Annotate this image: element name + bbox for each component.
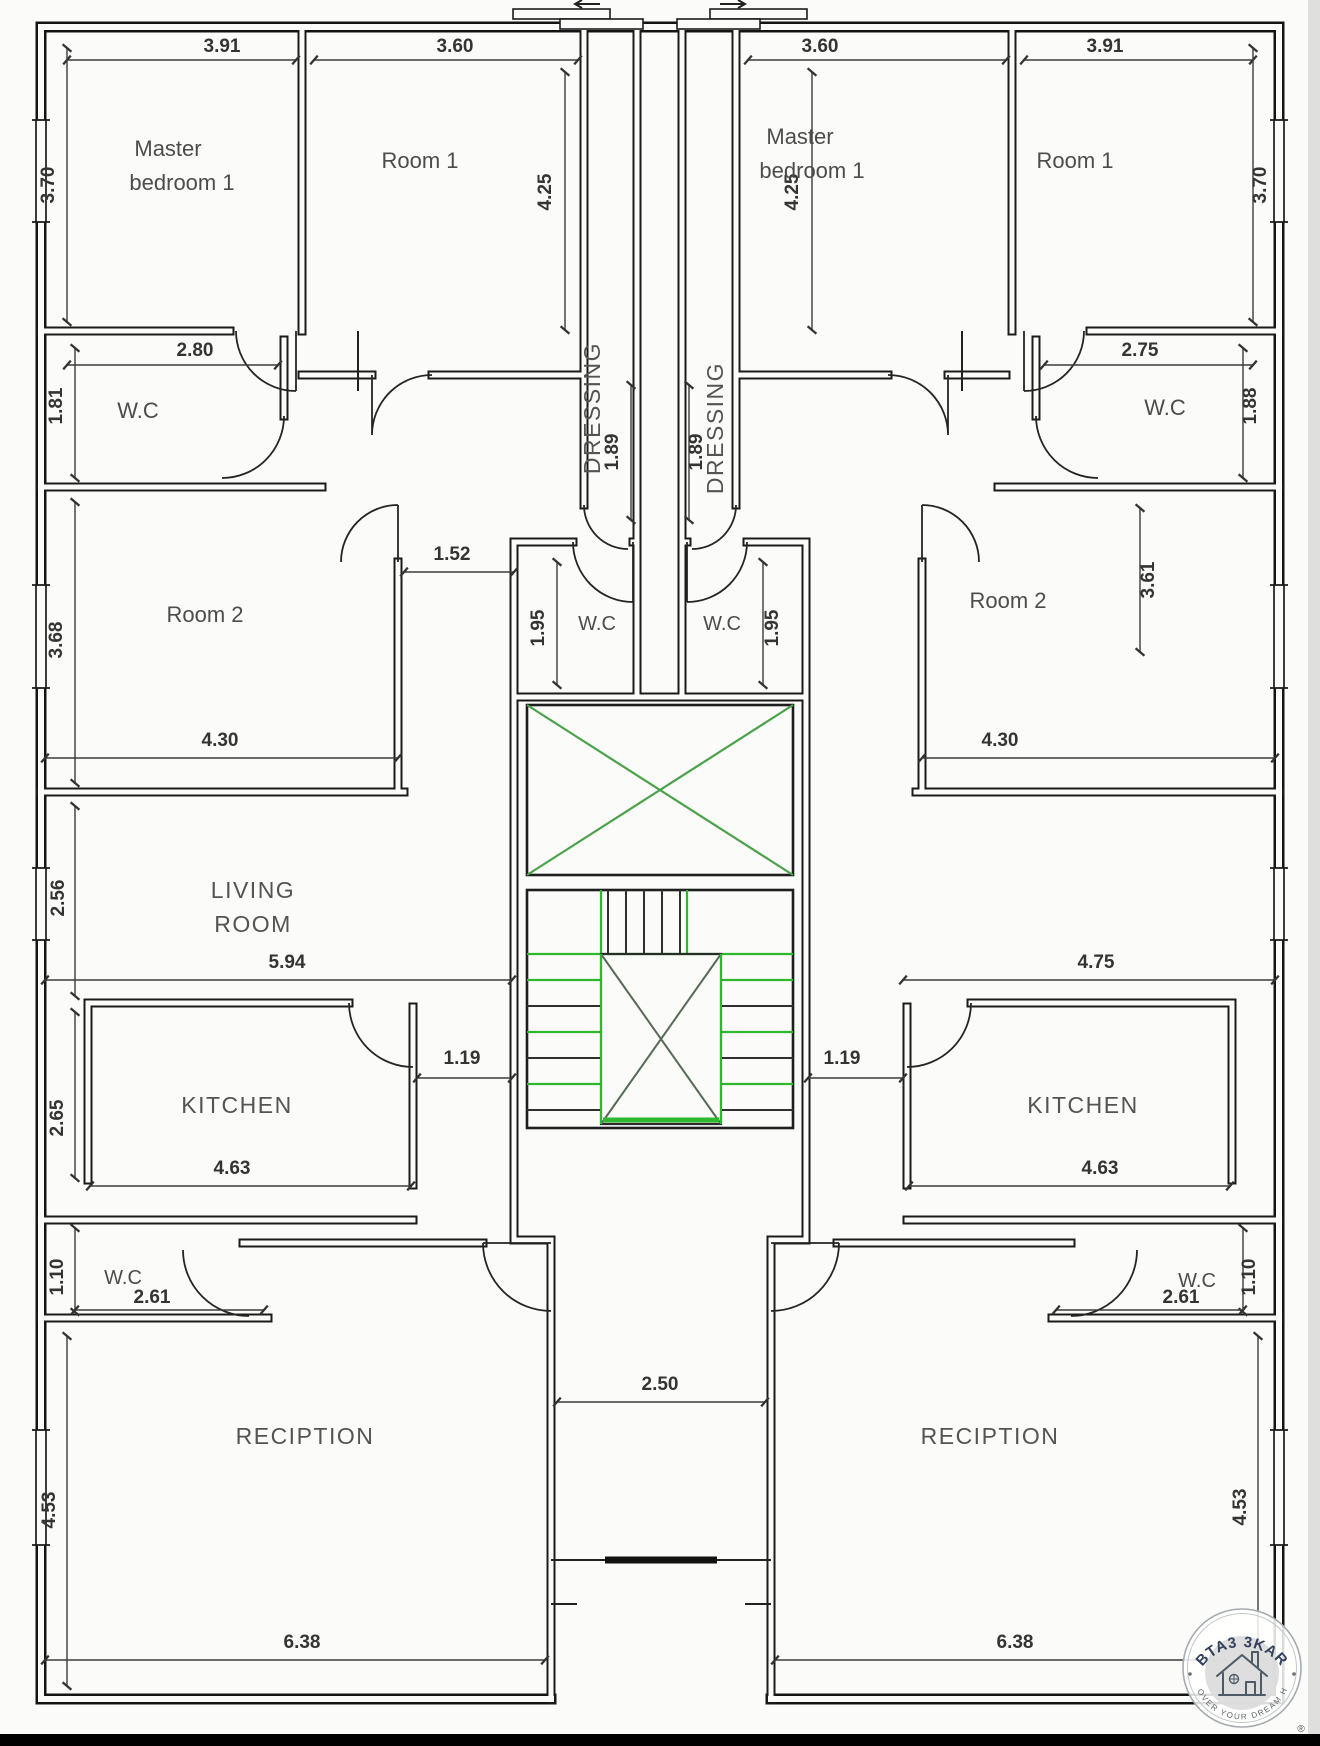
label-dressing-right: DRESSING (702, 362, 728, 494)
floor-plan-drawing: 3.91 3.60 3.60 3.91 3.70 3.70 4.25 4.25 … (0, 0, 1320, 1746)
dim-wc-bottom-h-right: 1.10 (1239, 1259, 1260, 1296)
dim-wc-bottom-h-left: 1.10 (47, 1259, 68, 1296)
label-living-line2: ROOM (214, 911, 292, 937)
window-right-living (1270, 868, 1288, 940)
label-room2-right: Room 2 (969, 588, 1046, 613)
window-right-room1 (1270, 120, 1288, 222)
label-reception-right: RECIPTION (921, 1423, 1060, 1449)
dim-room2-w-right: 4.30 (982, 730, 1019, 751)
paper-background (0, 0, 1320, 1746)
label-wc-core-left: W.C (578, 613, 616, 635)
dim-room1-h-right: 3.70 (1250, 167, 1271, 204)
dim-wc-bottom-w-left: 2.61 (134, 1287, 171, 1308)
dim-reception-h-right: 4.53 (1230, 1489, 1251, 1526)
dim-reception-h-left: 4.53 (39, 1492, 60, 1529)
window-right-room2 (1270, 585, 1288, 688)
label-room2-left: Room 2 (166, 602, 243, 627)
dim-living-w-left: 5.94 (269, 952, 306, 973)
dim-master-w-left: 3.91 (204, 36, 241, 57)
dim-master-w-right: 3.60 (802, 36, 839, 57)
dim-wc-top-h-left: 1.81 (46, 387, 67, 424)
dim-wc-top-w-right: 2.75 (1122, 340, 1159, 361)
dim-wc-top-h-right: 1.88 (1240, 388, 1261, 425)
dim-reception-w-right: 6.38 (997, 1632, 1034, 1653)
dim-kitchen-w-right: 4.63 (1082, 1158, 1119, 1179)
dim-wc-core-h-right: 1.95 (762, 609, 783, 646)
label-master-left-line2: bedroom 1 (129, 170, 234, 195)
dim-living-w-right: 4.75 (1078, 952, 1115, 973)
registered-mark: ® (1297, 1724, 1305, 1735)
dim-master-h-left: 3.70 (38, 167, 59, 204)
scan-bottom-bar (0, 1734, 1320, 1746)
label-living-line1: LIVING (211, 877, 295, 903)
label-room1-right: Room 1 (1036, 148, 1113, 173)
label-dressing-left: DRESSING (579, 342, 605, 474)
label-wc-bottom-right: W.C (1178, 1270, 1216, 1292)
dim-room2-h-right: 3.61 (1138, 561, 1159, 598)
scan-edge-strip (1308, 0, 1320, 1746)
dim-living-h-left: 2.56 (48, 880, 69, 917)
dim-passage-right: 1.19 (824, 1048, 861, 1069)
label-wc-top-left: W.C (117, 398, 159, 423)
scanned-floor-plan-page: 3.91 3.60 3.60 3.91 3.70 3.70 4.25 4.25 … (0, 0, 1320, 1746)
label-kitchen-right: KITCHEN (1027, 1092, 1138, 1118)
dim-room1-h-left: 4.25 (535, 173, 556, 210)
label-master-left-line1: Master (134, 136, 201, 161)
window-right-reception (1270, 1430, 1288, 1545)
dim-kitchen-w-left: 4.63 (214, 1158, 251, 1179)
label-master-right-line1: Master (766, 124, 833, 149)
dim-kitchen-h-left: 2.65 (47, 1099, 68, 1136)
dim-reception-w-left: 6.38 (284, 1632, 321, 1653)
dim-corridor-width: 2.50 (642, 1374, 679, 1395)
dim-hall-left: 1.52 (434, 544, 471, 565)
dim-passage-left: 1.19 (444, 1048, 481, 1069)
dim-wc-top-w-left: 2.80 (177, 340, 214, 361)
dim-room1-w-right: 3.91 (1087, 36, 1124, 57)
label-reception-left: RECIPTION (236, 1423, 375, 1449)
label-wc-top-right: W.C (1144, 395, 1186, 420)
label-kitchen-left: KITCHEN (181, 1092, 292, 1118)
label-wc-bottom-left: W.C (104, 1267, 142, 1289)
label-master-right-line2: bedroom 1 (759, 158, 864, 183)
watermark-dot-left (1188, 1672, 1192, 1676)
label-room1-left: Room 1 (381, 148, 458, 173)
dim-room2-w-left: 4.30 (202, 730, 239, 751)
dim-wc-core-h-left: 1.95 (528, 609, 549, 646)
dim-room1-w-left: 3.60 (437, 36, 474, 57)
dim-dressing-left: 1.89 (602, 434, 623, 471)
label-wc-core-right: W.C (703, 613, 741, 635)
watermark-dot-right (1292, 1672, 1296, 1676)
watermark-badge: BTA3 3KAR DISCOVER YOUR DREAM HOME (1183, 1609, 1301, 1727)
dim-room2-h-left: 3.68 (46, 622, 67, 659)
